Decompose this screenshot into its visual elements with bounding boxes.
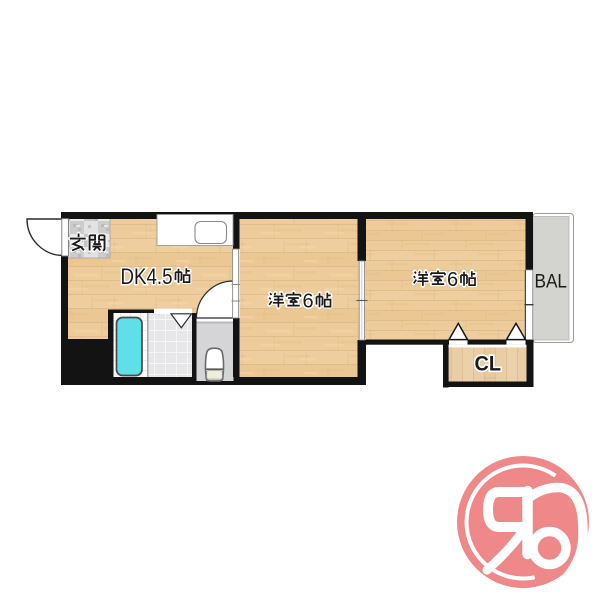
svg-text:6: 6 (303, 291, 314, 313)
svg-text:CL: CL (475, 353, 502, 376)
svg-text:DK4.5: DK4.5 (121, 264, 173, 289)
svg-text:BAL: BAL (535, 272, 568, 293)
